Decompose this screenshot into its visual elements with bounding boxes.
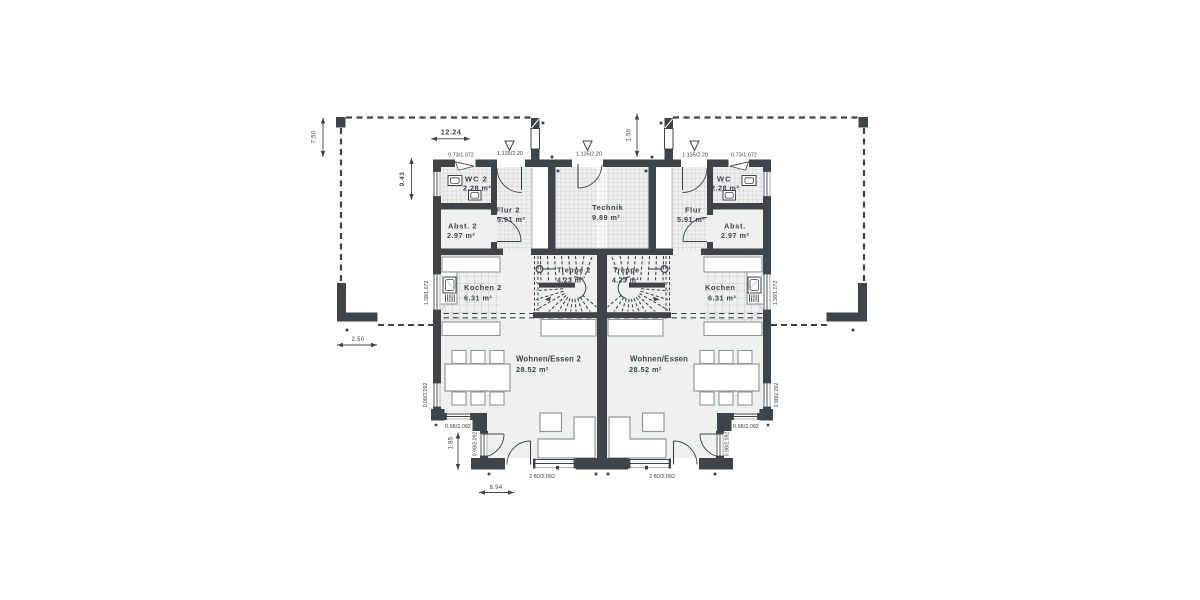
svg-text:1.135/2.20: 1.135/2.20 bbox=[682, 153, 708, 159]
svg-text:0.98/2.092: 0.98/2.092 bbox=[473, 432, 479, 457]
svg-text:9.43: 9.43 bbox=[399, 172, 406, 187]
svg-text:1.135/2.20: 1.135/2.20 bbox=[576, 152, 602, 158]
svg-text:4.23 m²: 4.23 m² bbox=[612, 278, 639, 285]
svg-text:Wohnen/Essen: Wohnen/Essen bbox=[630, 355, 688, 364]
svg-text:Treppe: Treppe bbox=[613, 266, 640, 275]
svg-text:Abst. 2: Abst. 2 bbox=[448, 222, 477, 231]
svg-text:Wohnen/Essen 2: Wohnen/Essen 2 bbox=[516, 355, 582, 364]
svg-text:0.98/2.092: 0.98/2.092 bbox=[423, 383, 429, 408]
svg-text:Kochen 2: Kochen 2 bbox=[464, 283, 502, 292]
svg-text:0.73/1.072: 0.73/1.072 bbox=[731, 153, 757, 159]
svg-text:Kochen: Kochen bbox=[705, 283, 736, 292]
svg-text:0.98/2.092: 0.98/2.092 bbox=[733, 424, 759, 430]
svg-text:9.89 m²: 9.89 m² bbox=[592, 213, 620, 222]
svg-text:8.94: 8.94 bbox=[490, 485, 503, 491]
svg-text:2.80/2.092: 2.80/2.092 bbox=[649, 474, 675, 480]
svg-text:1.38/1.072: 1.38/1.072 bbox=[424, 281, 430, 306]
svg-text:1.38/1.072: 1.38/1.072 bbox=[773, 281, 779, 306]
svg-text:0.98/2.092: 0.98/2.092 bbox=[445, 424, 471, 430]
svg-text:0.98/2.092: 0.98/2.092 bbox=[774, 383, 780, 408]
svg-text:5.91 m²: 5.91 m² bbox=[497, 215, 525, 224]
svg-text:Technik: Technik bbox=[592, 203, 624, 212]
svg-text:2.28 m²: 2.28 m² bbox=[463, 184, 491, 193]
svg-text:1.85: 1.85 bbox=[449, 436, 455, 449]
svg-text:2.80/2.092: 2.80/2.092 bbox=[529, 474, 555, 480]
svg-text:WC: WC bbox=[717, 175, 732, 184]
svg-text:2.97 m²: 2.97 m² bbox=[721, 231, 749, 240]
svg-text:Flur: Flur bbox=[685, 206, 702, 215]
svg-text:6.31 m²: 6.31 m² bbox=[708, 294, 736, 303]
svg-text:7.50: 7.50 bbox=[312, 130, 318, 143]
svg-text:Abst.: Abst. bbox=[724, 222, 746, 231]
svg-text:1.50: 1.50 bbox=[627, 128, 633, 141]
svg-text:2.50: 2.50 bbox=[352, 337, 365, 343]
svg-text:4.23 m²: 4.23 m² bbox=[557, 278, 584, 285]
svg-text:WC 2: WC 2 bbox=[465, 175, 488, 184]
svg-text:6.31 m²: 6.31 m² bbox=[464, 294, 492, 303]
svg-text:5.91 m²: 5.91 m² bbox=[677, 215, 705, 224]
svg-text:2.28 m²: 2.28 m² bbox=[711, 184, 739, 193]
svg-text:12.24: 12.24 bbox=[441, 128, 462, 137]
svg-text:2.97 m²: 2.97 m² bbox=[447, 231, 475, 240]
svg-text:0.98/2.092: 0.98/2.092 bbox=[725, 432, 731, 457]
svg-text:Flur 2: Flur 2 bbox=[496, 206, 520, 215]
svg-text:28.52 m²: 28.52 m² bbox=[629, 365, 662, 374]
svg-text:Treppe 2: Treppe 2 bbox=[557, 266, 591, 275]
svg-text:0.73/1.072: 0.73/1.072 bbox=[448, 153, 474, 159]
svg-text:1.135/2.20: 1.135/2.20 bbox=[497, 151, 523, 157]
svg-text:28.52 m²: 28.52 m² bbox=[516, 365, 549, 374]
